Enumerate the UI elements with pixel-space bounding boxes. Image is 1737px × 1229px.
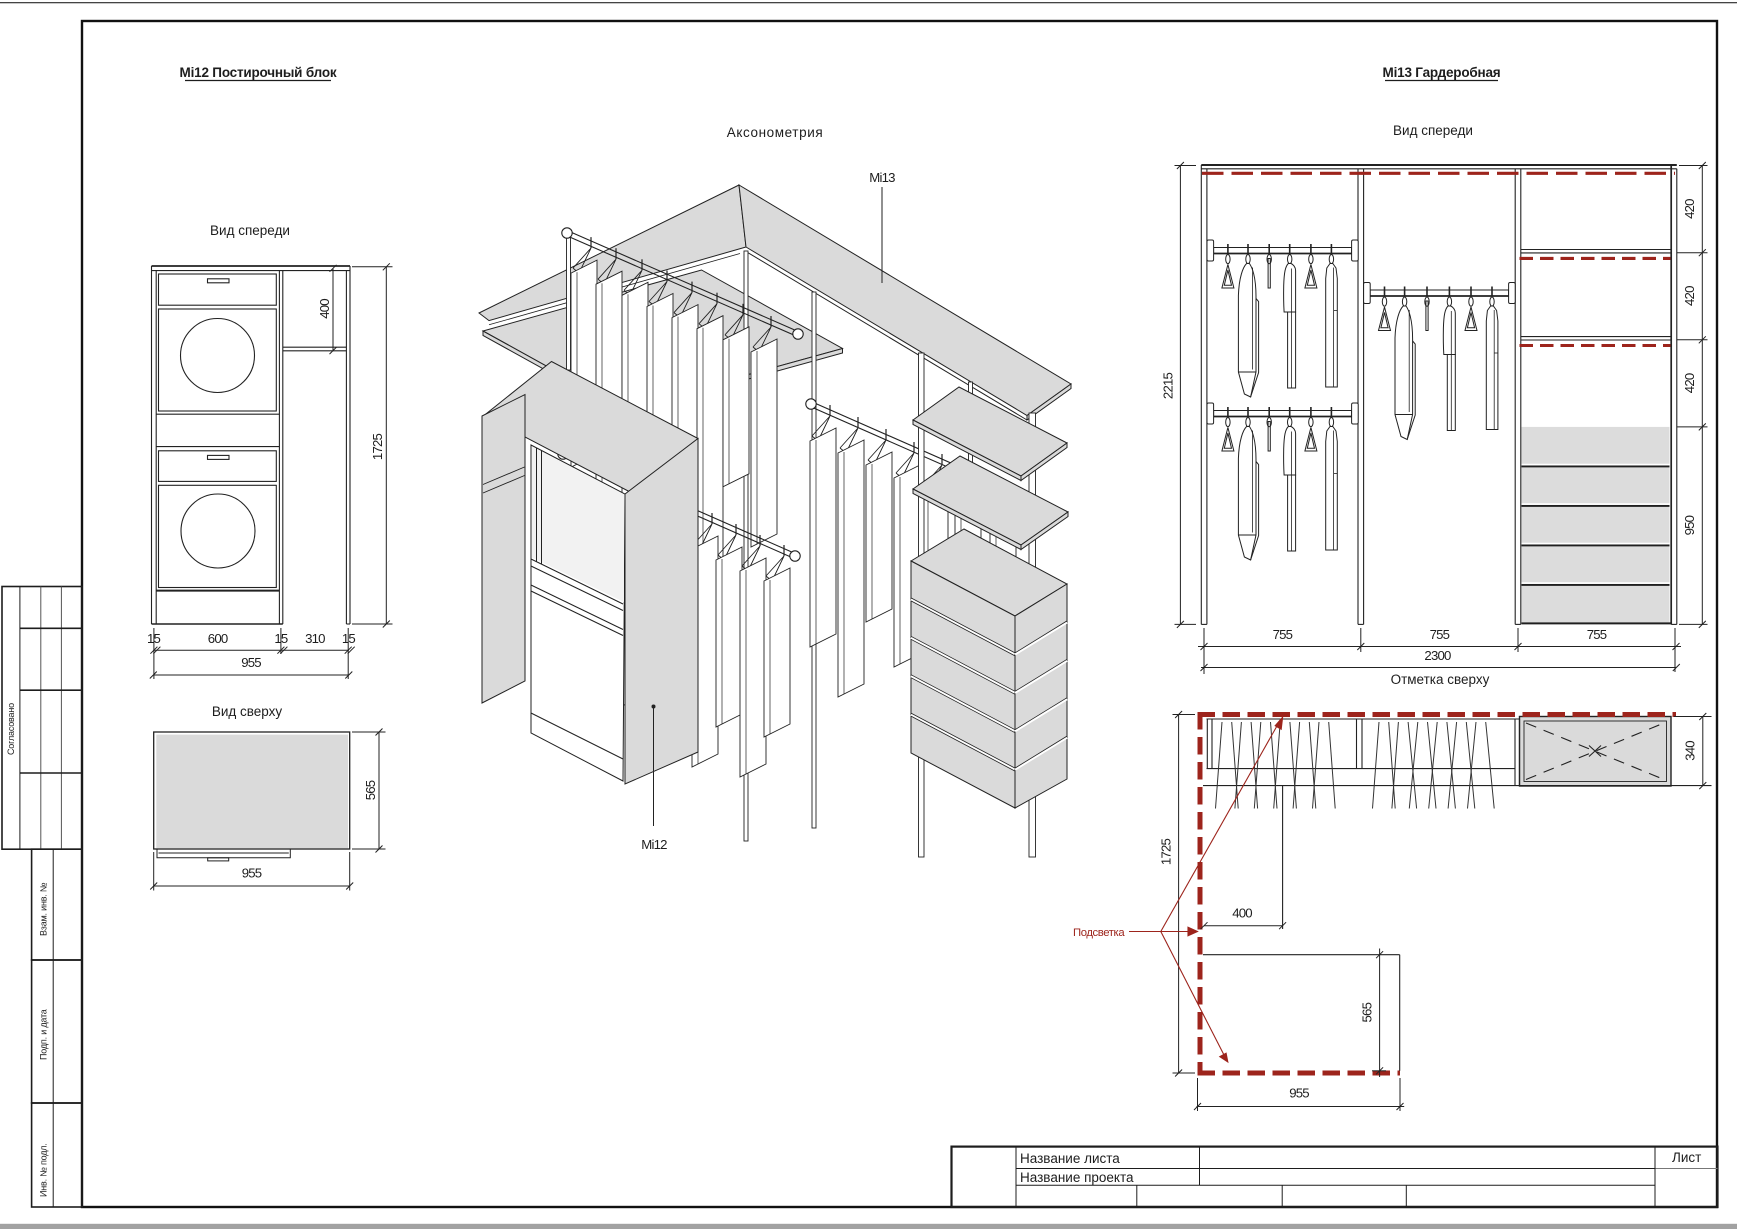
svg-text:Mi12 Постирочный блок: Mi12 Постирочный блок <box>180 65 337 80</box>
svg-text:Mi13: Mi13 <box>869 170 895 185</box>
svg-text:420: 420 <box>1682 286 1697 306</box>
svg-text:15: 15 <box>342 631 356 646</box>
svg-text:Вид сверху: Вид сверху <box>212 704 283 719</box>
svg-text:955: 955 <box>241 655 261 670</box>
svg-text:340: 340 <box>1683 741 1698 761</box>
svg-text:755: 755 <box>1587 627 1607 642</box>
svg-text:15: 15 <box>147 631 161 646</box>
svg-text:Подп. и дата: Подп. и дата <box>39 1009 49 1060</box>
svg-text:Название листа: Название листа <box>1020 1151 1120 1166</box>
svg-text:755: 755 <box>1273 627 1293 642</box>
svg-text:2215: 2215 <box>1161 372 1176 399</box>
svg-text:950: 950 <box>1682 515 1697 535</box>
svg-text:Лист: Лист <box>1672 1150 1701 1165</box>
svg-text:2300: 2300 <box>1424 648 1451 663</box>
svg-text:Подсветка: Подсветка <box>1073 927 1125 939</box>
svg-text:565: 565 <box>363 780 378 800</box>
svg-text:310: 310 <box>305 631 325 646</box>
svg-text:400: 400 <box>1232 906 1252 921</box>
svg-text:955: 955 <box>242 866 262 881</box>
svg-text:Вид спереди: Вид спереди <box>210 223 290 238</box>
svg-text:Mi12: Mi12 <box>641 837 667 852</box>
svg-text:955: 955 <box>1289 1086 1309 1101</box>
svg-text:420: 420 <box>1682 199 1697 219</box>
svg-text:Инв. № подл.: Инв. № подл. <box>39 1143 49 1197</box>
svg-text:400: 400 <box>317 299 332 319</box>
svg-text:15: 15 <box>274 631 288 646</box>
svg-text:1725: 1725 <box>1159 838 1174 865</box>
svg-text:Согласовано: Согласовано <box>6 703 16 755</box>
svg-text:Название проекта: Название проекта <box>1020 1170 1134 1185</box>
svg-text:Вид спереди: Вид спереди <box>1393 123 1473 138</box>
svg-text:Аксонометрия: Аксонометрия <box>727 125 824 140</box>
svg-text:420: 420 <box>1682 373 1697 393</box>
svg-text:755: 755 <box>1430 627 1450 642</box>
svg-text:Mi13 Гардеробная: Mi13 Гардеробная <box>1383 65 1501 80</box>
svg-text:Отметка сверху: Отметка сверху <box>1391 672 1490 687</box>
svg-text:1725: 1725 <box>370 433 385 460</box>
svg-text:565: 565 <box>1360 1002 1375 1022</box>
svg-text:600: 600 <box>208 631 228 646</box>
svg-text:Взам. инв. №: Взам. инв. № <box>39 882 49 936</box>
